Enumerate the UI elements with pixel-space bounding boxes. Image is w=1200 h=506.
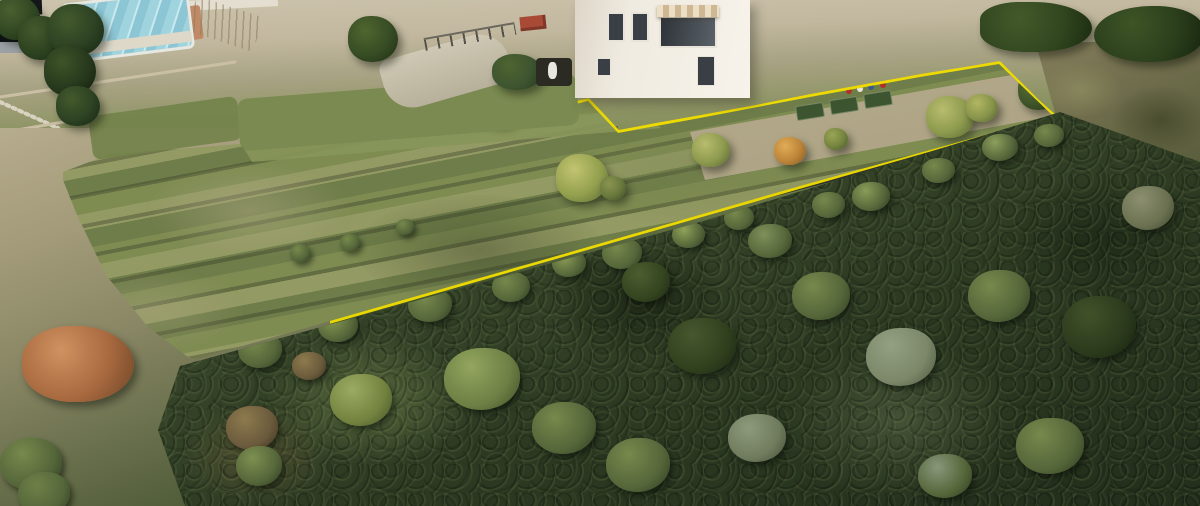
- villa: [575, 0, 750, 98]
- tree: [966, 94, 998, 122]
- window: [607, 12, 625, 42]
- tall-pine: [56, 86, 100, 126]
- tree: [600, 176, 626, 200]
- red-roof-shed: [519, 15, 546, 32]
- dead-tree: [22, 326, 134, 402]
- tree: [692, 133, 730, 167]
- autumn-tree: [774, 137, 806, 165]
- tree: [824, 128, 848, 150]
- white-figure: [548, 62, 557, 79]
- aerial-photo: [0, 0, 1200, 506]
- hedge: [1094, 6, 1200, 62]
- hedge: [980, 2, 1092, 52]
- terrace-wall: [0, 62, 235, 97]
- awning: [657, 5, 719, 17]
- tree: [556, 154, 608, 202]
- door: [697, 56, 715, 86]
- hedge: [492, 54, 542, 90]
- tree: [348, 16, 398, 62]
- window: [631, 12, 649, 42]
- bush: [18, 472, 70, 506]
- window: [597, 58, 611, 76]
- window-band: [659, 16, 717, 48]
